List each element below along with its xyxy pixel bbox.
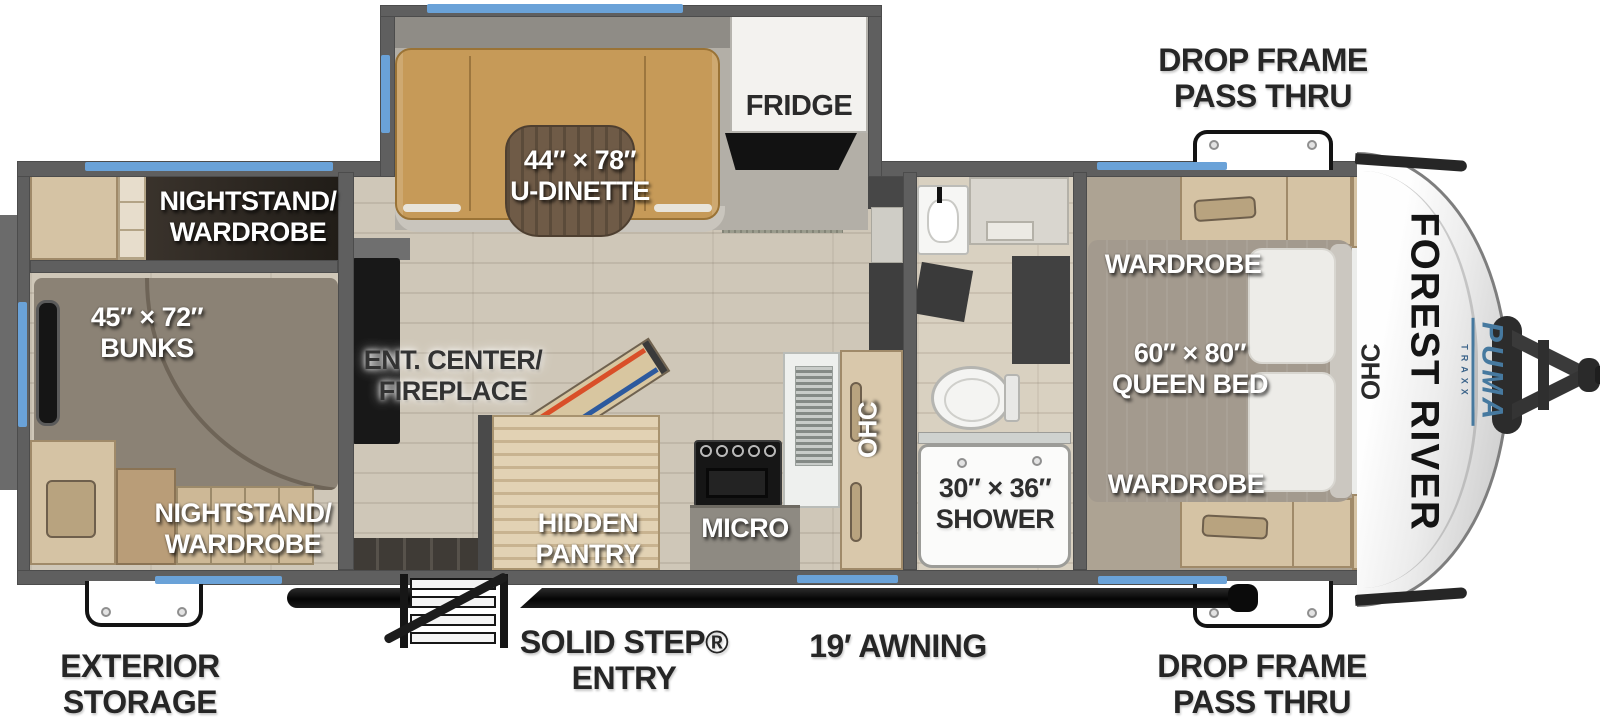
label-hidden-pantry: HIDDEN PANTRY — [536, 508, 641, 569]
door-screw — [1209, 140, 1219, 150]
shower-glass-divider — [918, 432, 1071, 444]
tv-shelf — [352, 238, 410, 260]
label-solid-step-entry: SOLID STEP® ENTRY — [520, 624, 728, 696]
faucet — [937, 187, 942, 203]
label-drop-frame-pass-thru-bottom: DROP FRAME PASS THRU — [1157, 648, 1367, 720]
cabinet-door-inset — [46, 480, 96, 538]
bath-bedroom-wall — [1073, 172, 1087, 570]
label-shower: 30″ × 36″ SHOWER — [936, 473, 1055, 534]
brand-puma-logo: PUMA TRAXX — [1460, 318, 1507, 426]
window-accent — [155, 576, 282, 584]
toilet — [931, 366, 1011, 430]
label-queen-bed: 60″ × 80″ QUEEN BED — [1112, 338, 1268, 399]
awning-roller-right — [520, 588, 1236, 608]
brand-forest-river: FOREST RIVER — [1402, 212, 1447, 532]
door-screw — [1209, 608, 1219, 618]
kitchen-sink-counter — [783, 352, 840, 508]
cap-trim-bottom — [1355, 587, 1467, 606]
door-screw — [177, 607, 187, 617]
label-drop-frame-pass-thru-top: DROP FRAME PASS THRU — [1158, 42, 1368, 114]
brand-puma: PUMA — [1472, 318, 1507, 426]
toilet-lid-line — [944, 378, 1000, 422]
toilet-tank — [1004, 374, 1020, 422]
dinette-armrest — [403, 204, 461, 212]
kitchen-ohc-cabinet — [840, 350, 903, 570]
entry-door-threshold — [352, 538, 487, 570]
door-screw — [1307, 140, 1317, 150]
label-wardrobe-bottom: WARDROBE — [1108, 469, 1265, 500]
bunk-room-divider-wall — [30, 260, 338, 273]
living-bath-wall — [903, 172, 917, 570]
label-nightstand-wardrobe-top: NIGHTSTAND/ WARDROBE — [160, 186, 337, 247]
bunk-nightstand-cabinet-top — [30, 172, 118, 260]
brand-puma-sub: TRAXX — [1460, 318, 1470, 426]
awning-end-cap — [1228, 584, 1258, 612]
shower-screw — [1032, 456, 1042, 466]
slide-wall-right — [868, 5, 882, 177]
cabinet-divider — [1292, 500, 1294, 566]
bunk-nightstand-cabinet-bottom — [30, 440, 116, 565]
pantry-wall-edge — [478, 415, 492, 570]
step-rail-right — [500, 574, 508, 648]
step-tread — [410, 632, 496, 644]
sink-cover-rack — [795, 366, 833, 466]
kitchen-tall-cabinet-dark — [869, 263, 903, 353]
oven-window — [706, 468, 768, 498]
window-accent — [1098, 576, 1227, 584]
dinette-seam — [469, 56, 471, 211]
label-u-dinette: 44″ × 78″ U-DINETTE — [510, 145, 650, 206]
rear-window — [36, 300, 60, 426]
label-ohc-kitchen: OHC — [853, 402, 882, 458]
window-accent — [85, 162, 333, 171]
dinette-armrest — [654, 204, 712, 212]
label-awning: 19′ AWNING — [809, 628, 987, 664]
bathroom-vanity-dark — [913, 262, 973, 322]
bunkroom-living-wall — [338, 172, 354, 570]
window-accent — [427, 4, 683, 13]
window-accent — [18, 302, 27, 427]
label-fridge: FRIDGE — [746, 90, 853, 123]
cap-trim-top — [1355, 153, 1467, 172]
cabinet-handle — [850, 482, 862, 542]
window-accent — [381, 55, 390, 133]
wardrobe-handle — [1201, 514, 1268, 539]
awning-roller-left — [287, 588, 412, 608]
door-screw — [1307, 608, 1317, 618]
label-ent-center-fireplace: ENT. CENTER/ FIREPLACE — [364, 345, 543, 406]
exterior-storage-door — [85, 581, 203, 627]
label-bunks: 45″ × 72″ BUNKS — [91, 302, 203, 363]
window-accent — [797, 575, 898, 583]
bedroom-wardrobe-top — [1180, 172, 1352, 246]
window-accent — [1097, 162, 1227, 170]
kitchen-counter-small — [871, 207, 903, 263]
cabinet-divider — [1286, 174, 1288, 244]
bunk-shelf-unit-top — [118, 173, 146, 260]
stove-burners — [700, 445, 776, 457]
label-nightstand-wardrobe-bottom: NIGHTSTAND/ WARDROBE — [155, 498, 332, 559]
bathroom-sink — [917, 185, 969, 255]
label-ohc-bedroom: OHC — [1356, 344, 1385, 400]
door-screw — [101, 607, 111, 617]
sink-basin — [927, 199, 959, 243]
label-wardrobe-top: WARDROBE — [1105, 249, 1262, 280]
floorplan-diagram: FOREST RIVER PUMA TRAXX NIGHTSTAND/ WARD… — [0, 0, 1600, 727]
wardrobe-handle — [1193, 196, 1256, 222]
stove-range — [694, 440, 782, 508]
bathroom-linen-cabinet — [1012, 256, 1070, 364]
label-exterior-storage: EXTERIOR STORAGE — [60, 648, 220, 720]
fridge-vent — [725, 133, 857, 170]
shower-screw — [957, 458, 967, 468]
bedroom-wardrobe-bottom — [1180, 498, 1352, 568]
bathroom-cabinet — [969, 177, 1069, 245]
label-micro: MICRO — [701, 513, 789, 544]
bathroom-skylight — [986, 221, 1034, 241]
